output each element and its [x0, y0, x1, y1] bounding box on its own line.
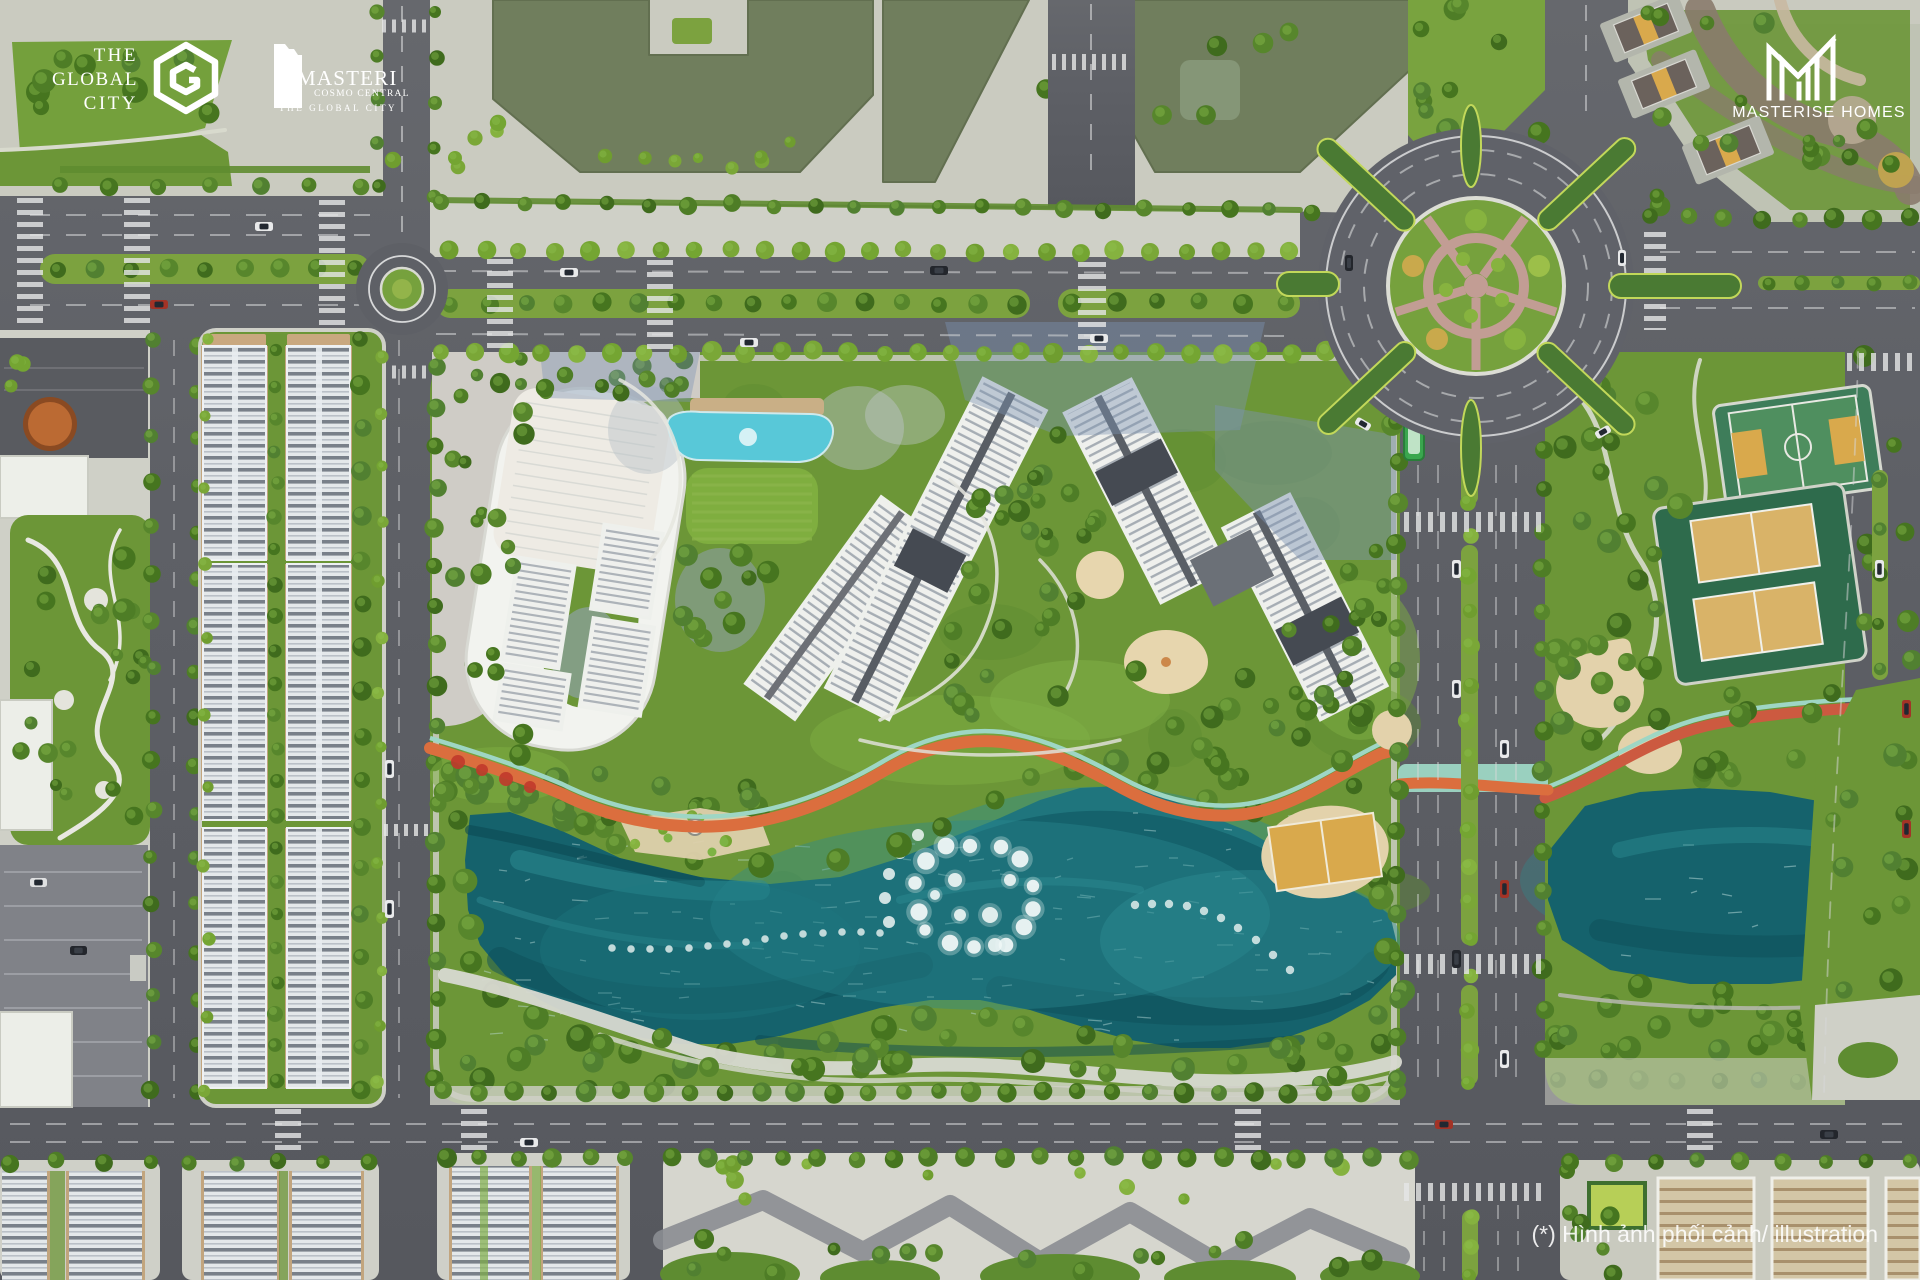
svg-text:MASTERISE HOMES: MASTERISE HOMES	[1732, 104, 1906, 121]
svg-text:THE: THE	[94, 45, 138, 66]
svg-text:MASTERI: MASTERI	[297, 66, 398, 90]
svg-text:(*) Hình ảnh phối cảnh/ illust: (*) Hình ảnh phối cảnh/ illustration	[1532, 1221, 1878, 1247]
svg-text:GLOBAL: GLOBAL	[52, 69, 138, 90]
svg-text:THE GLOBAL CITY: THE GLOBAL CITY	[279, 103, 397, 113]
svg-text:COSMO CENTRAL: COSMO CENTRAL	[314, 89, 410, 99]
svg-text:CITY: CITY	[84, 93, 138, 114]
